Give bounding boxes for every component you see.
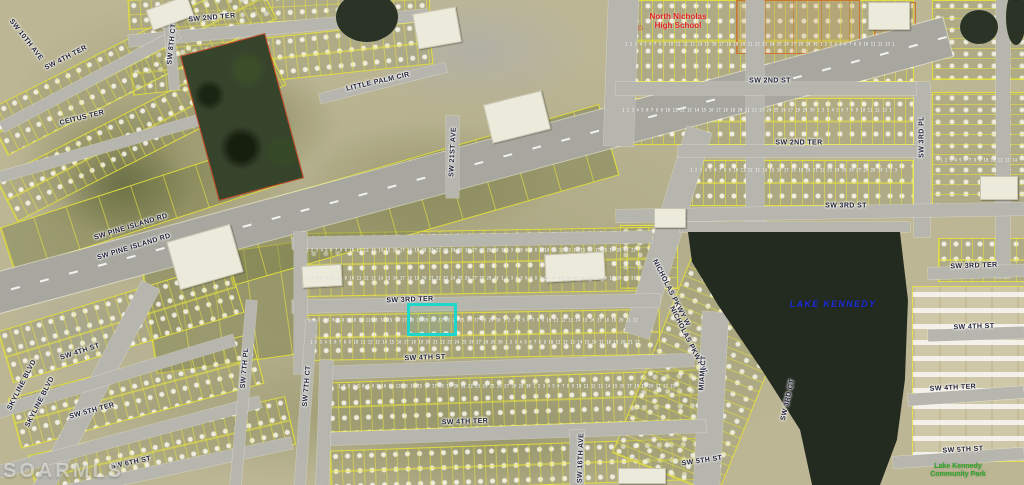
street-label: SW 4TH TER	[930, 383, 977, 392]
street-label: SKYLINE BLVD	[24, 376, 55, 429]
park-name-line2: Community Park	[930, 471, 986, 479]
highlighted-parcel[interactable]	[407, 303, 457, 336]
lake-name: LAKE KENNEDY	[790, 299, 877, 309]
street-label: SW 5TH TER	[69, 402, 116, 421]
street-label: SW 10TH AVE	[8, 18, 44, 62]
school-name-line1: North Nicholas	[650, 12, 707, 21]
street-label: MIAMI CT	[698, 355, 707, 390]
aerial-map[interactable]: 1 2 3 4 5 6 7 8 9 10 11 12 13 14 15 16 1…	[0, 0, 1024, 485]
street-label: SW 4TH ST	[59, 342, 100, 361]
street-label: SW 3RD PL	[919, 116, 926, 158]
school-icon: ⌂	[638, 22, 643, 32]
street-label: SW 4TH TER	[44, 44, 89, 71]
street-label: SW 21ST AVE	[448, 127, 458, 177]
street-label: CEITUS TER	[59, 109, 105, 127]
street-label: SW 5TH ST	[942, 445, 983, 454]
street-label: SW 2ND TER	[188, 12, 236, 23]
lake-label: LAKE KENNEDY	[790, 294, 877, 312]
park-name-line1: Lake Kennedy	[930, 463, 986, 471]
street-label: SW 4TH ST	[404, 354, 445, 362]
street-labels-layer: SW 2ND TERSW 10TH AVESW 4TH TERSW 8TH CT…	[0, 0, 1024, 485]
park-label: Lake Kennedy Community Park	[930, 463, 986, 479]
mls-watermark: SOARMLS	[3, 460, 124, 483]
street-label: SW 4TH ST	[953, 323, 994, 331]
street-label: SW 4TH TER	[442, 418, 489, 427]
street-label: SW 7TH CT	[302, 365, 313, 407]
school-label: ⌂ North Nicholas High School	[650, 12, 707, 30]
street-label: SW 3RD TER	[950, 262, 997, 271]
street-label: NICHOLAS PKWY W	[651, 258, 691, 327]
street-label: SW 8TH CT	[166, 23, 177, 65]
street-label: SW 7TH PL	[240, 347, 251, 388]
street-label: SW 2ND TER	[775, 140, 822, 147]
street-label: SW 3RD CT	[780, 379, 796, 422]
street-label: LITTLE PALM CIR	[346, 71, 411, 92]
school-name-line2: High School	[650, 21, 707, 30]
street-label: SW 16TH AVE	[577, 433, 586, 484]
street-label: SKYLINE BLVD	[6, 359, 37, 412]
street-label: SW 2ND ST	[749, 78, 791, 85]
street-label: SW 5TH ST	[681, 455, 723, 468]
street-label: SW 3RD ST	[825, 203, 867, 210]
